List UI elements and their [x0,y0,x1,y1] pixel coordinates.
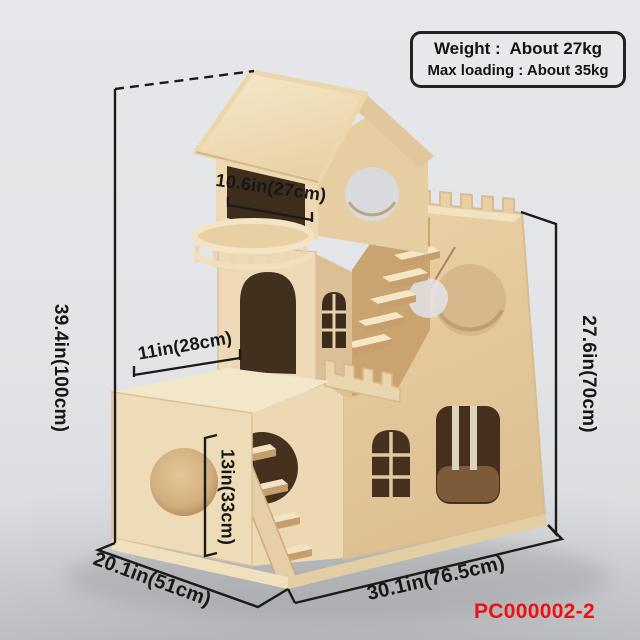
dim-dashed-roof-line [115,71,254,89]
dim-total-height-label: 39.4in(100cm) [49,304,71,432]
dim-right-height-label: 27.6in(70cm) [577,315,599,433]
product-code: PC000002-2 [474,600,595,624]
weight-line: Weight : About 27kg [419,38,617,61]
weight-info-box: Weight : About 27kg Max loading : About … [410,31,626,88]
box-round-hole [150,448,218,516]
product-illustration [0,0,640,640]
dim-box-height-label: 13in(33cm) [217,449,238,545]
balcony [195,221,311,272]
max-loading-line: Max loading : About 35kg [419,61,617,81]
birdhouse-round-hole [345,167,399,221]
tower-arched-door [240,272,296,374]
product-photo-stage: 39.4in(100cm) 27.6in(70cm) 10.6in(27cm) … [0,0,640,640]
